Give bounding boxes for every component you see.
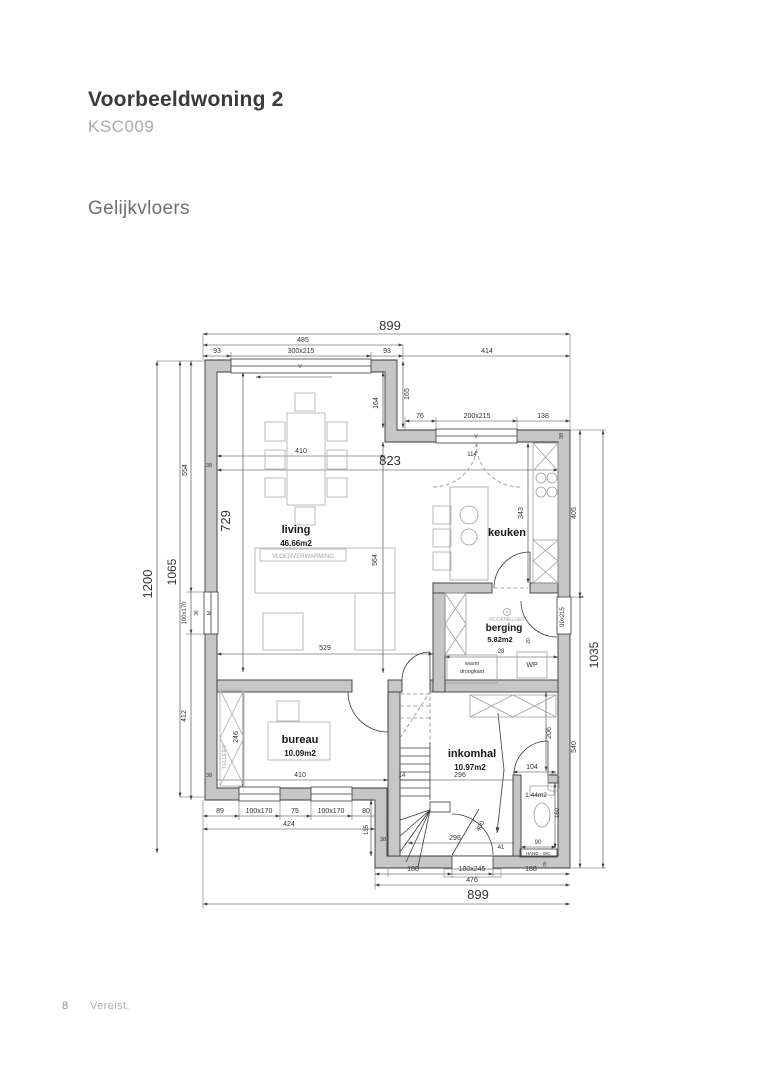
plan-label: 38 (380, 837, 386, 843)
plan-label: 485 (297, 337, 309, 344)
plan-label: 104 (526, 764, 538, 771)
plan-label: 25 (542, 861, 547, 867)
plan-label: inkomhal (448, 748, 496, 760)
plan-label: 200x215 (464, 413, 491, 420)
plan-label: 80 (362, 808, 370, 815)
plan-label: 46.66m2 (280, 539, 312, 548)
plan-label: 529 (319, 645, 331, 652)
plan-label: 93 (213, 348, 221, 355)
plan-label: 188 (407, 866, 419, 873)
plan-label: 296 (449, 835, 461, 842)
plan-label: M (207, 611, 213, 615)
plan-label: 38 (206, 773, 212, 779)
footer-note: Vereist. (90, 1000, 130, 1012)
plan-label: VLOERVERWARMING (272, 554, 334, 560)
plan-label: droogkast (460, 669, 485, 675)
plan-label: 405 (571, 507, 578, 519)
plan-label: 100x170 (246, 808, 273, 815)
plan-label: 90x215 (560, 606, 566, 626)
plan-label: 135 (364, 824, 370, 835)
plan-label: 5 (579, 595, 585, 598)
plan-label: 410 (295, 448, 307, 455)
plan-label: wasm (464, 661, 480, 667)
plan-label: 89 (216, 808, 224, 815)
plan-label: 10.09m2 (284, 749, 316, 758)
plan-label: 729 (218, 510, 233, 532)
plan-label: 206 (546, 727, 553, 739)
plan-label: ROOKMELDER (489, 617, 525, 623)
plan-label: 823 (379, 453, 401, 468)
plan-label: 20 (526, 638, 532, 644)
plan-label: 100x245 (459, 866, 486, 873)
plan-label: 138 (537, 413, 549, 420)
plan-label: berging (486, 623, 523, 634)
plan-label: 343 (518, 507, 525, 519)
plan-label: 14 (399, 773, 406, 779)
plan-label: 540 (571, 741, 578, 753)
plan-label: 75 (291, 808, 299, 815)
plan-label: 188 (525, 866, 537, 873)
plan-label: 412 (181, 710, 188, 722)
plan-label: 1065 (165, 558, 179, 585)
plan-label: HANG - WC (526, 851, 551, 856)
plan-label: bureau (282, 734, 319, 746)
plan-label: 410 (294, 772, 306, 779)
plan-label: 1200 (140, 570, 155, 599)
plan-label: 160 (555, 807, 561, 818)
plan-label: 300x215 (288, 348, 315, 355)
plan-label: 38 (206, 463, 212, 469)
plan-label: keuken (488, 527, 526, 539)
floor-plan-drawing: 89948593300x2159341416516476200x21513841… (0, 0, 764, 1080)
plan-label: TELLERS (222, 744, 228, 769)
plan-label: WP (526, 662, 538, 669)
plan-label: 28 (498, 649, 505, 655)
plan-label: 76 (416, 413, 424, 420)
plan-label: 164 (373, 397, 380, 409)
plan-label: living (282, 524, 311, 536)
page-number: 8 (62, 1000, 68, 1012)
plan-label: 100x170 (318, 808, 345, 815)
plan-label: 165 (404, 388, 411, 400)
plan-label: 899 (379, 318, 401, 333)
plan-label: 5.82m2 (487, 635, 512, 644)
plan-label: 93 (383, 348, 391, 355)
plan-label: 114 (467, 452, 477, 458)
plan-label: 38 (559, 433, 565, 439)
plan-label: 41 (498, 845, 505, 851)
plan-label: 564 (372, 554, 379, 566)
plan-label: 36 (194, 610, 200, 616)
plan-label: 10.97m2 (454, 763, 486, 772)
plan-label: 414 (481, 348, 493, 355)
plan-label: 554 (182, 464, 189, 476)
plan-label: 476 (466, 877, 478, 884)
plan-label: 1035 (587, 641, 601, 668)
plan-label: 899 (467, 887, 489, 902)
plan-label: 1.44m2 (525, 792, 547, 799)
plan-label: 246 (233, 731, 240, 743)
plan-label: 296 (454, 772, 466, 779)
plan-label: 100x170 (182, 601, 188, 625)
plan-label: 424 (283, 821, 295, 828)
plan-label: 90 (535, 840, 542, 846)
document-page: Voorbeeldwoning 2 KSC009 Gelijkvloers (0, 0, 764, 1080)
